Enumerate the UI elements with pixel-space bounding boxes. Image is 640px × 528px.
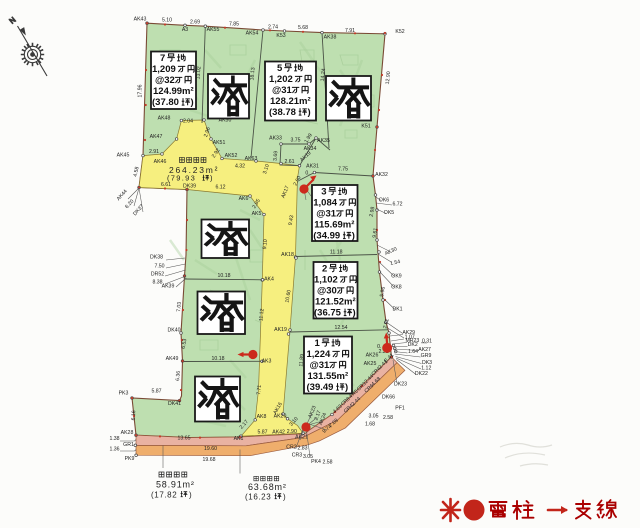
svg-text:AK1: AK1 [234,436,244,442]
svg-text:AK47: AK47 [150,134,163,140]
svg-text:AK35: AK35 [317,138,330,144]
svg-text:CR3: CR3 [292,453,302,459]
svg-text:DK66: DK66 [382,395,395,401]
svg-text:2.74: 2.74 [268,24,278,30]
svg-text:(16.23: (16.23 [245,493,271,502]
svg-text:AK28: AK28 [121,430,134,436]
svg-text:DK1: DK1 [392,307,402,313]
svg-text:18.13: 18.13 [249,67,256,81]
svg-text:(36.75: (36.75 [314,308,342,319]
svg-text:AK18: AK18 [281,252,294,258]
svg-text:121.52m²: 121.52m² [315,297,356,308]
svg-text:OK9: OK9 [391,274,401,280]
svg-text:AK5: AK5 [252,211,262,217]
svg-text:AK31: AK31 [306,164,319,170]
svg-text:9.10: 9.10 [262,239,269,250]
svg-text:AK54: AK54 [246,31,259,37]
svg-text:6.36: 6.36 [175,371,182,382]
svg-text:1: 1 [315,338,321,349]
svg-text:17.96: 17.96 [138,84,144,97]
svg-text:5.68: 5.68 [298,25,308,31]
svg-text:0.: 0. [305,171,309,177]
svg-text:(17.82: (17.82 [151,491,177,500]
svg-text:GR9: GR9 [421,353,432,359]
svg-text:19.60: 19.60 [204,446,217,452]
svg-text:2: 2 [322,264,327,275]
svg-text:58.91m²: 58.91m² [156,480,195,490]
svg-text:K52: K52 [395,29,404,35]
svg-text:K53: K53 [276,33,285,39]
svg-text:(38.78: (38.78 [269,107,296,118]
svg-text:1,084: 1,084 [313,198,337,209]
svg-text:AK38: AK38 [324,34,337,40]
svg-text:6.16: 6.16 [131,410,138,421]
svg-text:AK33: AK33 [269,136,282,142]
svg-text:AK52: AK52 [225,153,238,159]
svg-text:5.87: 5.87 [151,388,161,394]
svg-text:): ) [353,308,356,319]
svg-text:7.85: 7.85 [229,21,239,27]
svg-text:AK48: AK48 [158,116,171,122]
svg-text:3.75: 3.75 [290,138,300,144]
svg-text:1,209: 1,209 [152,64,176,75]
svg-text:128.21m²: 128.21m² [270,96,311,107]
svg-text:AK43: AK43 [134,17,147,23]
svg-text:6.12: 6.12 [215,185,225,191]
svg-text:2.58: 2.58 [322,460,332,466]
svg-text:1.38: 1.38 [109,436,119,442]
svg-text:7: 7 [160,53,165,64]
svg-text:7.71: 7.71 [256,384,263,395]
svg-text:0.31: 0.31 [422,339,432,345]
svg-text:): ) [352,231,355,242]
svg-text:7.03: 7.03 [176,302,183,313]
svg-text:PK4: PK4 [311,459,321,465]
svg-text:(39.49: (39.49 [307,382,334,393]
svg-text:AK49: AK49 [166,356,179,362]
svg-text:10.18: 10.18 [212,356,225,362]
svg-text:): ) [308,107,311,118]
svg-text:AK34: AK34 [304,146,317,152]
svg-text:AK27: AK27 [418,347,431,353]
svg-text:11.18: 11.18 [330,250,343,256]
svg-text:5: 5 [277,63,283,74]
svg-text:2.04: 2.04 [183,119,193,125]
svg-text:19.68: 19.68 [203,457,216,463]
svg-text:DK2: DK2 [408,342,418,348]
svg-text:6.72: 6.72 [392,202,402,208]
svg-text:3.05: 3.05 [368,414,378,420]
svg-text:AK46: AK46 [154,159,167,165]
svg-text:DK23: DK23 [394,382,407,388]
svg-text:1,224: 1,224 [307,349,331,360]
svg-text:AK8: AK8 [257,414,267,420]
svg-text:131.55m²: 131.55m² [308,371,349,382]
svg-text:13.65: 13.65 [178,436,191,442]
svg-text:1,202: 1,202 [269,74,293,85]
svg-text:): ) [345,382,348,393]
svg-text:AK42: AK42 [272,429,285,435]
svg-text:1,102: 1,102 [314,275,338,286]
svg-text:DK40: DK40 [168,328,181,334]
svg-text:AK3: AK3 [262,359,272,365]
svg-text:2.83: 2.83 [297,445,307,451]
svg-text:): ) [283,493,286,502]
svg-text:7.91: 7.91 [345,28,355,34]
svg-text:@32: @32 [155,75,175,86]
svg-text:5.87: 5.87 [257,430,267,436]
svg-text:AK39: AK39 [162,284,175,290]
svg-text:7.75: 7.75 [338,166,348,172]
svg-text:3.69: 3.69 [273,151,280,162]
svg-text:DK38: DK38 [150,255,163,261]
svg-text:63.68m²: 63.68m² [248,482,287,492]
svg-text:AK20: AK20 [274,414,287,420]
svg-text:AK25: AK25 [364,361,377,367]
svg-text:AK6: AK6 [239,196,249,202]
svg-text:DK22: DK22 [415,371,428,377]
svg-text:DK39: DK39 [183,184,196,190]
svg-text:AK45: AK45 [117,153,130,159]
svg-text:2.91: 2.91 [149,149,159,155]
svg-text:PF1: PF1 [395,406,405,412]
svg-text:CR2: CR2 [286,445,296,451]
svg-text:PK3: PK3 [119,391,129,397]
svg-text:2.61: 2.61 [284,159,294,165]
svg-text:115.69m²: 115.69m² [314,220,354,231]
svg-text:DR52: DR52 [151,272,164,278]
svg-text:): ) [189,491,192,500]
svg-text:6.61: 6.61 [161,182,171,188]
svg-text:(34.99: (34.99 [313,231,340,242]
svg-text:AK32: AK32 [375,172,388,178]
svg-text:5.10: 5.10 [162,18,172,24]
svg-text:(79.93: (79.93 [167,174,196,183]
svg-text:): ) [191,97,194,108]
svg-text:2.58: 2.58 [383,415,393,421]
svg-text:1.36: 1.36 [109,447,119,453]
svg-text:1.68: 1.68 [365,422,375,428]
svg-text:GR1: GR1 [123,442,134,448]
svg-text:DK41: DK41 [168,401,181,407]
svg-text:2.69: 2.69 [190,20,200,26]
svg-text:A3: A3 [182,27,188,33]
svg-text:K51: K51 [361,124,370,130]
svg-text:124.99m²: 124.99m² [153,86,194,97]
svg-text:12.54: 12.54 [335,325,348,331]
svg-text:AK55: AK55 [207,27,220,33]
svg-text:12.90: 12.90 [385,71,392,85]
svg-text:3: 3 [321,187,326,198]
svg-text:(37.80: (37.80 [152,97,179,108]
svg-text:PK9: PK9 [125,456,135,462]
svg-text:4.32: 4.32 [235,164,245,170]
svg-text:AK63: AK63 [245,156,258,162]
svg-text:AK19: AK19 [274,327,287,333]
svg-text:@30: @30 [317,286,337,297]
svg-text:@31: @31 [272,85,293,96]
svg-text:@31: @31 [316,209,337,220]
svg-text:7.50: 7.50 [154,264,164,270]
svg-text:AK4: AK4 [264,277,274,283]
svg-text:@31: @31 [310,360,331,371]
svg-text:AK26: AK26 [366,353,379,359]
svg-text:AK51: AK51 [213,140,226,146]
svg-text:10.18: 10.18 [218,273,231,279]
